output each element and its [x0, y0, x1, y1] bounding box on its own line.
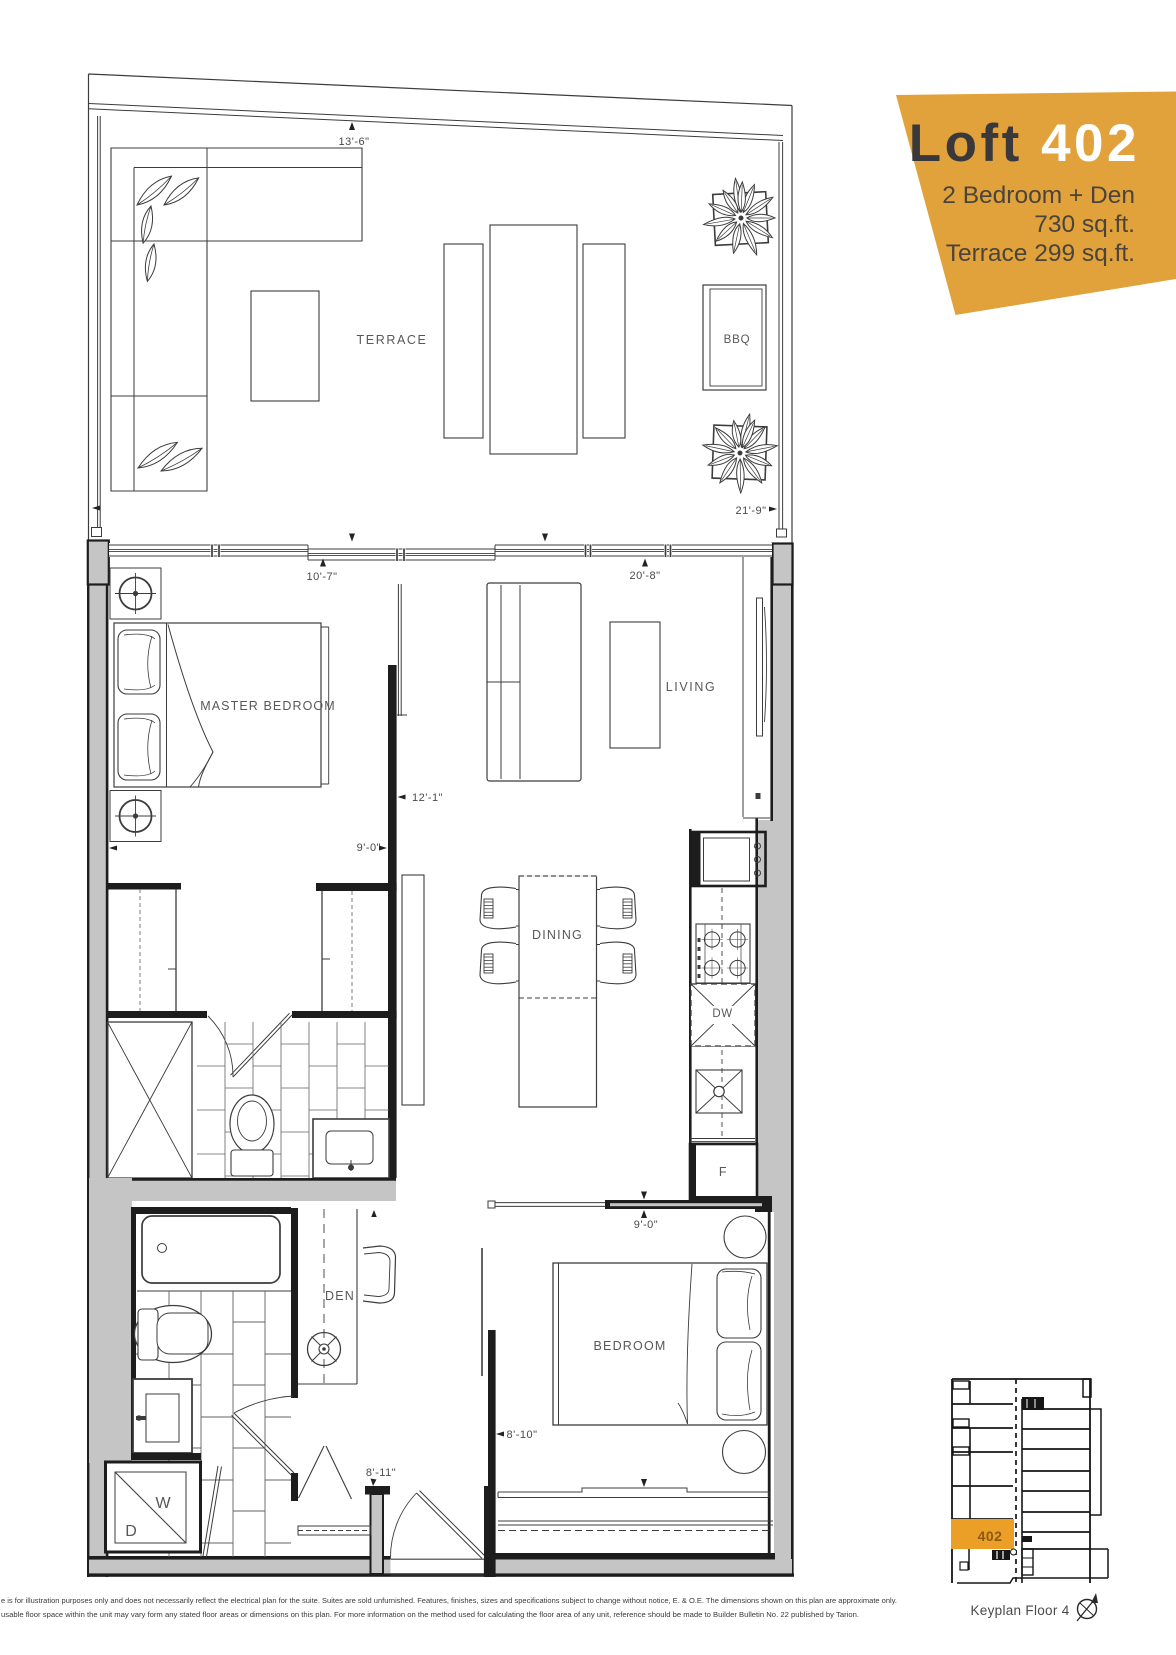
svg-text:13'-6": 13'-6" — [338, 136, 369, 148]
svg-text:402: 402 — [978, 1528, 1003, 1544]
svg-text:Terrace 299 sq.ft.: Terrace 299 sq.ft. — [946, 240, 1135, 267]
svg-text:10'-7": 10'-7" — [306, 571, 337, 583]
svg-text:9'-0": 9'-0" — [357, 842, 381, 854]
svg-text:LIVING: LIVING — [666, 680, 717, 694]
svg-text:20'-8": 20'-8" — [629, 570, 660, 582]
svg-text:e is for illustration purposes: e is for illustration purposes only and … — [1, 1596, 897, 1605]
svg-text:12'-1": 12'-1" — [412, 792, 443, 804]
svg-text:DW: DW — [712, 1008, 732, 1020]
svg-text:usable floor space within the: usable floor space within the unit may v… — [1, 1610, 859, 1619]
svg-text:21'-9": 21'-9" — [735, 505, 766, 517]
svg-text:DEN: DEN — [325, 1289, 355, 1303]
svg-text:BEDROOM: BEDROOM — [594, 1339, 667, 1353]
svg-text:D: D — [125, 1523, 137, 1540]
svg-text:2 Bedroom + Den: 2 Bedroom + Den — [942, 182, 1135, 209]
svg-text:Keyplan Floor 4: Keyplan Floor 4 — [970, 1603, 1069, 1618]
svg-text:TERRACE: TERRACE — [357, 333, 428, 347]
svg-text:DINING: DINING — [532, 928, 583, 942]
svg-text:8'-11": 8'-11" — [366, 1467, 396, 1479]
svg-text:MASTER BEDROOM: MASTER BEDROOM — [200, 699, 336, 713]
svg-text:BBQ: BBQ — [724, 334, 751, 346]
svg-text:9'-0": 9'-0" — [634, 1219, 658, 1231]
svg-text:730 sq.ft.: 730 sq.ft. — [1034, 211, 1135, 238]
svg-text:Loft 402: Loft 402 — [909, 114, 1140, 173]
svg-text:F: F — [719, 1165, 727, 1179]
svg-text:8'-10": 8'-10" — [506, 1429, 537, 1441]
svg-text:W: W — [155, 1495, 171, 1512]
